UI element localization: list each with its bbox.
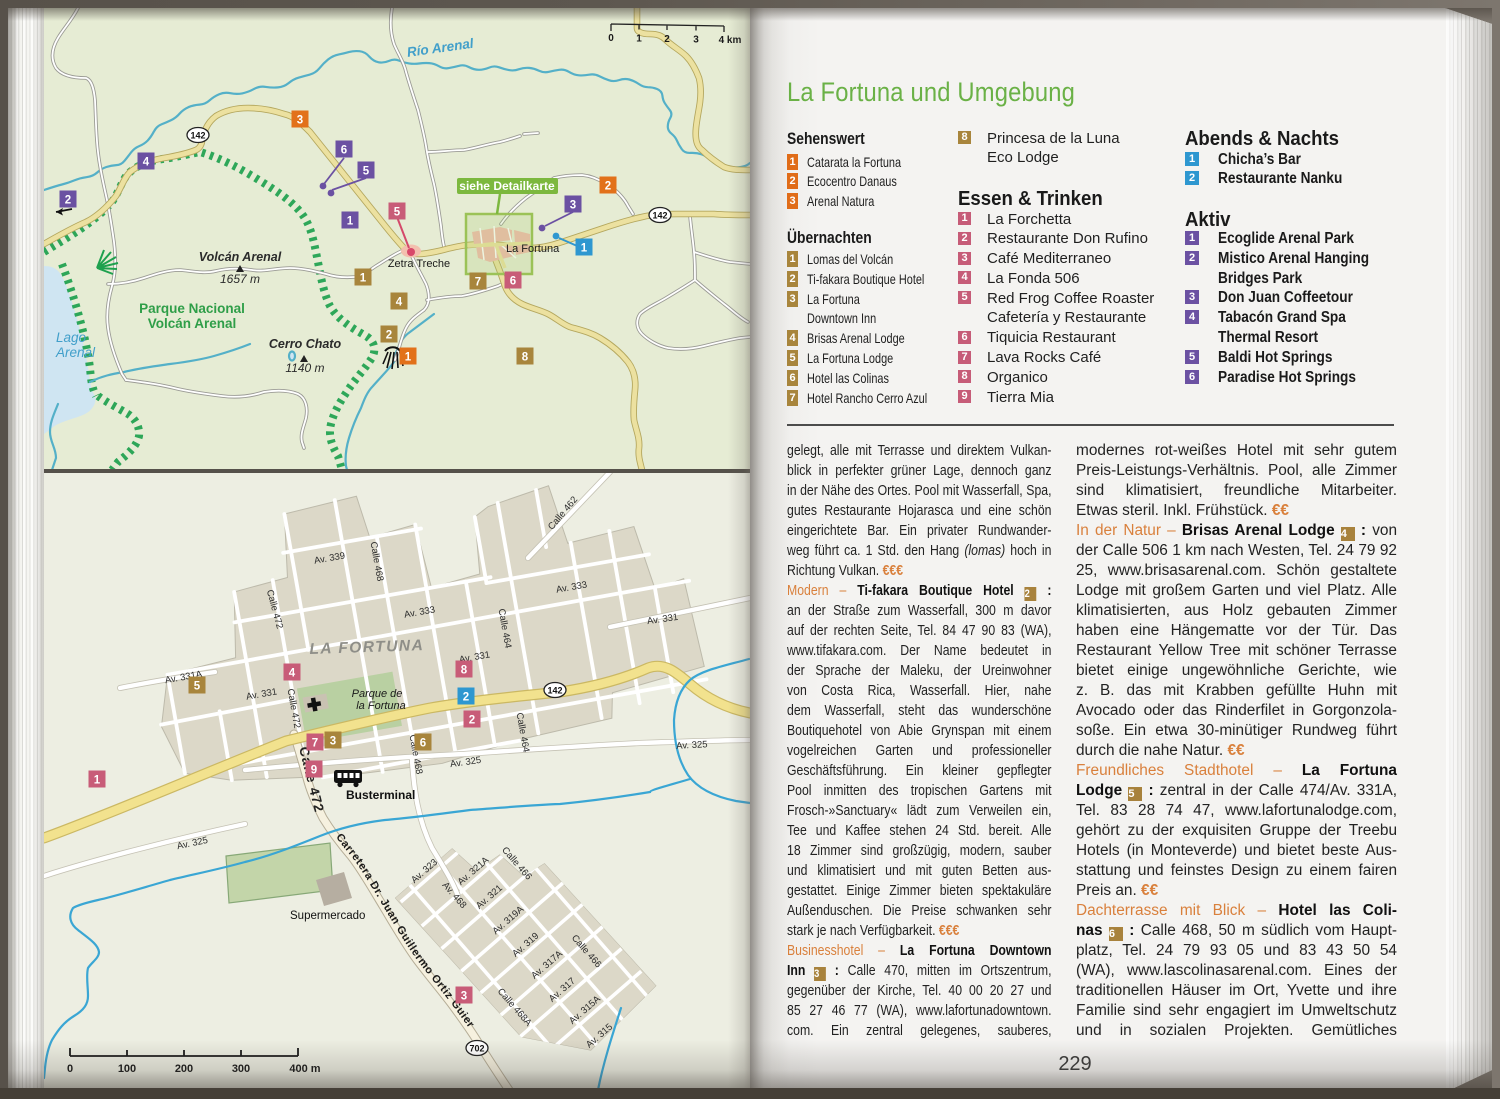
svg-text:142: 142 — [190, 131, 205, 141]
svg-text:Cerro Chato: Cerro Chato — [269, 337, 342, 351]
svg-text:200: 200 — [175, 1063, 193, 1075]
svg-text:100: 100 — [118, 1063, 136, 1075]
svg-text:1: 1 — [636, 34, 642, 45]
svg-text:8: 8 — [461, 665, 468, 677]
svg-text:3: 3 — [693, 35, 699, 46]
svg-text:9: 9 — [311, 765, 317, 777]
svg-text:Parque Nacional: Parque Nacional — [139, 301, 245, 316]
svg-text:2: 2 — [386, 330, 392, 342]
svg-text:Arenal: Arenal — [55, 345, 96, 360]
svg-text:6: 6 — [341, 145, 347, 157]
svg-text:Zetra Treche: Zetra Treche — [388, 258, 450, 270]
svg-text:4: 4 — [143, 157, 150, 169]
svg-text:702: 702 — [469, 1044, 484, 1054]
svg-text:5: 5 — [194, 681, 201, 693]
svg-text:la Fortuna: la Fortuna — [356, 700, 406, 712]
svg-text:300: 300 — [232, 1063, 250, 1075]
svg-text:8: 8 — [522, 352, 529, 364]
svg-text:Lago: Lago — [56, 330, 87, 345]
svg-text:2: 2 — [605, 181, 611, 193]
svg-text:3: 3 — [570, 200, 576, 212]
svg-text:6: 6 — [420, 738, 426, 750]
svg-text:2: 2 — [463, 692, 469, 704]
svg-text:La Fortuna: La Fortuna — [506, 243, 560, 255]
svg-text:5: 5 — [394, 207, 401, 219]
svg-text:1: 1 — [347, 216, 354, 228]
svg-text:siehe Detailkarte: siehe Detailkarte — [459, 179, 555, 193]
svg-text:1657 m: 1657 m — [220, 272, 260, 286]
svg-text:3: 3 — [461, 991, 467, 1003]
svg-text:0: 0 — [608, 33, 614, 44]
svg-text:1: 1 — [94, 775, 101, 787]
svg-text:4 km: 4 km — [719, 35, 742, 46]
svg-text:Av. 325: Av. 325 — [676, 739, 708, 752]
svg-text:4: 4 — [289, 668, 296, 680]
svg-text:1140 m: 1140 m — [285, 361, 324, 375]
svg-text:3: 3 — [297, 115, 303, 127]
svg-text:Supermercado: Supermercado — [290, 910, 365, 922]
svg-text:1: 1 — [581, 243, 588, 255]
svg-text:400 m: 400 m — [289, 1063, 320, 1075]
svg-text:2: 2 — [469, 715, 475, 727]
svg-text:Parque de: Parque de — [352, 688, 403, 700]
svg-text:1: 1 — [360, 273, 367, 285]
svg-text:3: 3 — [330, 736, 336, 748]
svg-text:7: 7 — [475, 277, 481, 289]
svg-text:6: 6 — [510, 276, 516, 288]
svg-text:142: 142 — [547, 686, 562, 696]
svg-text:2: 2 — [65, 195, 71, 207]
svg-text:0: 0 — [67, 1063, 73, 1075]
svg-text:Volcán Arenal: Volcán Arenal — [199, 250, 282, 264]
svg-text:1: 1 — [405, 352, 412, 364]
svg-text:4: 4 — [396, 297, 403, 309]
svg-text:5: 5 — [363, 166, 370, 178]
svg-text:Busterminal: Busterminal — [346, 788, 415, 802]
svg-text:142: 142 — [652, 211, 667, 221]
svg-text:7: 7 — [312, 738, 318, 750]
svg-text:Volcán Arenal: Volcán Arenal — [148, 316, 237, 331]
svg-text:2: 2 — [664, 34, 670, 45]
